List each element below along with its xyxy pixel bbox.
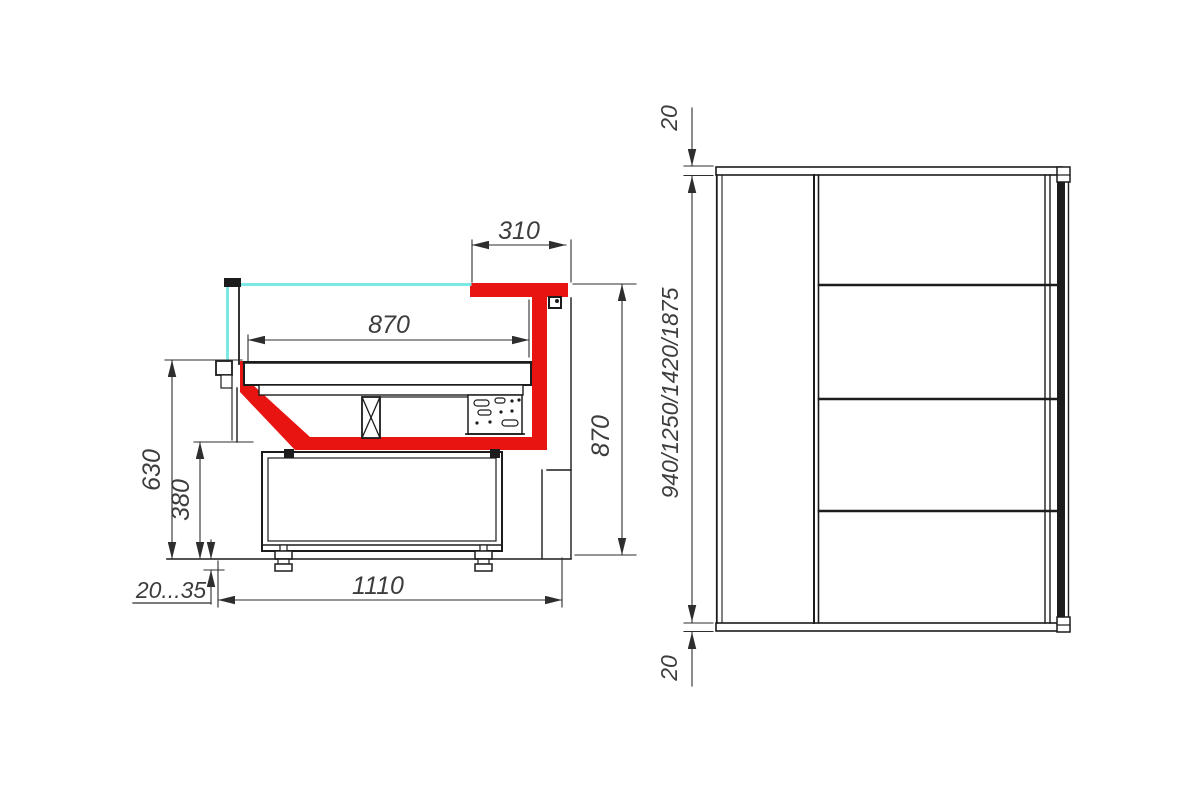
- dim-label-canopy-depth: 310: [498, 217, 540, 245]
- counter-deck: [244, 362, 531, 385]
- cabinet-clip-left: [284, 449, 294, 458]
- glass-edge-strip: [1057, 182, 1065, 617]
- canopy-clip: [549, 297, 561, 308]
- drawing-canvas: 310 870 630 380 20...35 1110 870: [0, 0, 1200, 800]
- dim-label-top-panel: 20: [656, 105, 682, 132]
- glass-bottom-block: [1057, 617, 1070, 632]
- glass-top-block: [1057, 167, 1070, 182]
- bottom-panel: [716, 623, 1062, 631]
- dim-label-overall-heights: 940/1250/1420/1875: [657, 287, 683, 498]
- deck-lip: [259, 385, 523, 395]
- dim-label-base-height: 380: [167, 479, 195, 521]
- condensing-unit: [466, 395, 524, 434]
- base-cabinet-outer: [262, 452, 502, 551]
- top-panel: [716, 167, 1062, 175]
- dim-label-rear-height: 870: [587, 415, 615, 457]
- dim-label-base-depth: 1110: [352, 572, 404, 600]
- front-view: 20 940/1250/1420/1875 20: [656, 105, 1070, 686]
- front-bumper-bracket: [216, 361, 232, 388]
- dim-label-bottom-panel: 20: [656, 655, 682, 682]
- cross-brace: [362, 397, 380, 438]
- cabinet-clip-right: [490, 449, 500, 458]
- section-view: 310 870 630 380 20...35 1110 870: [133, 217, 636, 607]
- dim-label-deck-depth: 870: [368, 311, 410, 339]
- front-dimensions: [684, 108, 713, 686]
- technical-drawing: 310 870 630 380 20...35 1110 870: [0, 0, 1200, 800]
- dim-label-foot-adjust: 20...35: [135, 577, 207, 603]
- dim-label-front-height: 630: [138, 449, 166, 491]
